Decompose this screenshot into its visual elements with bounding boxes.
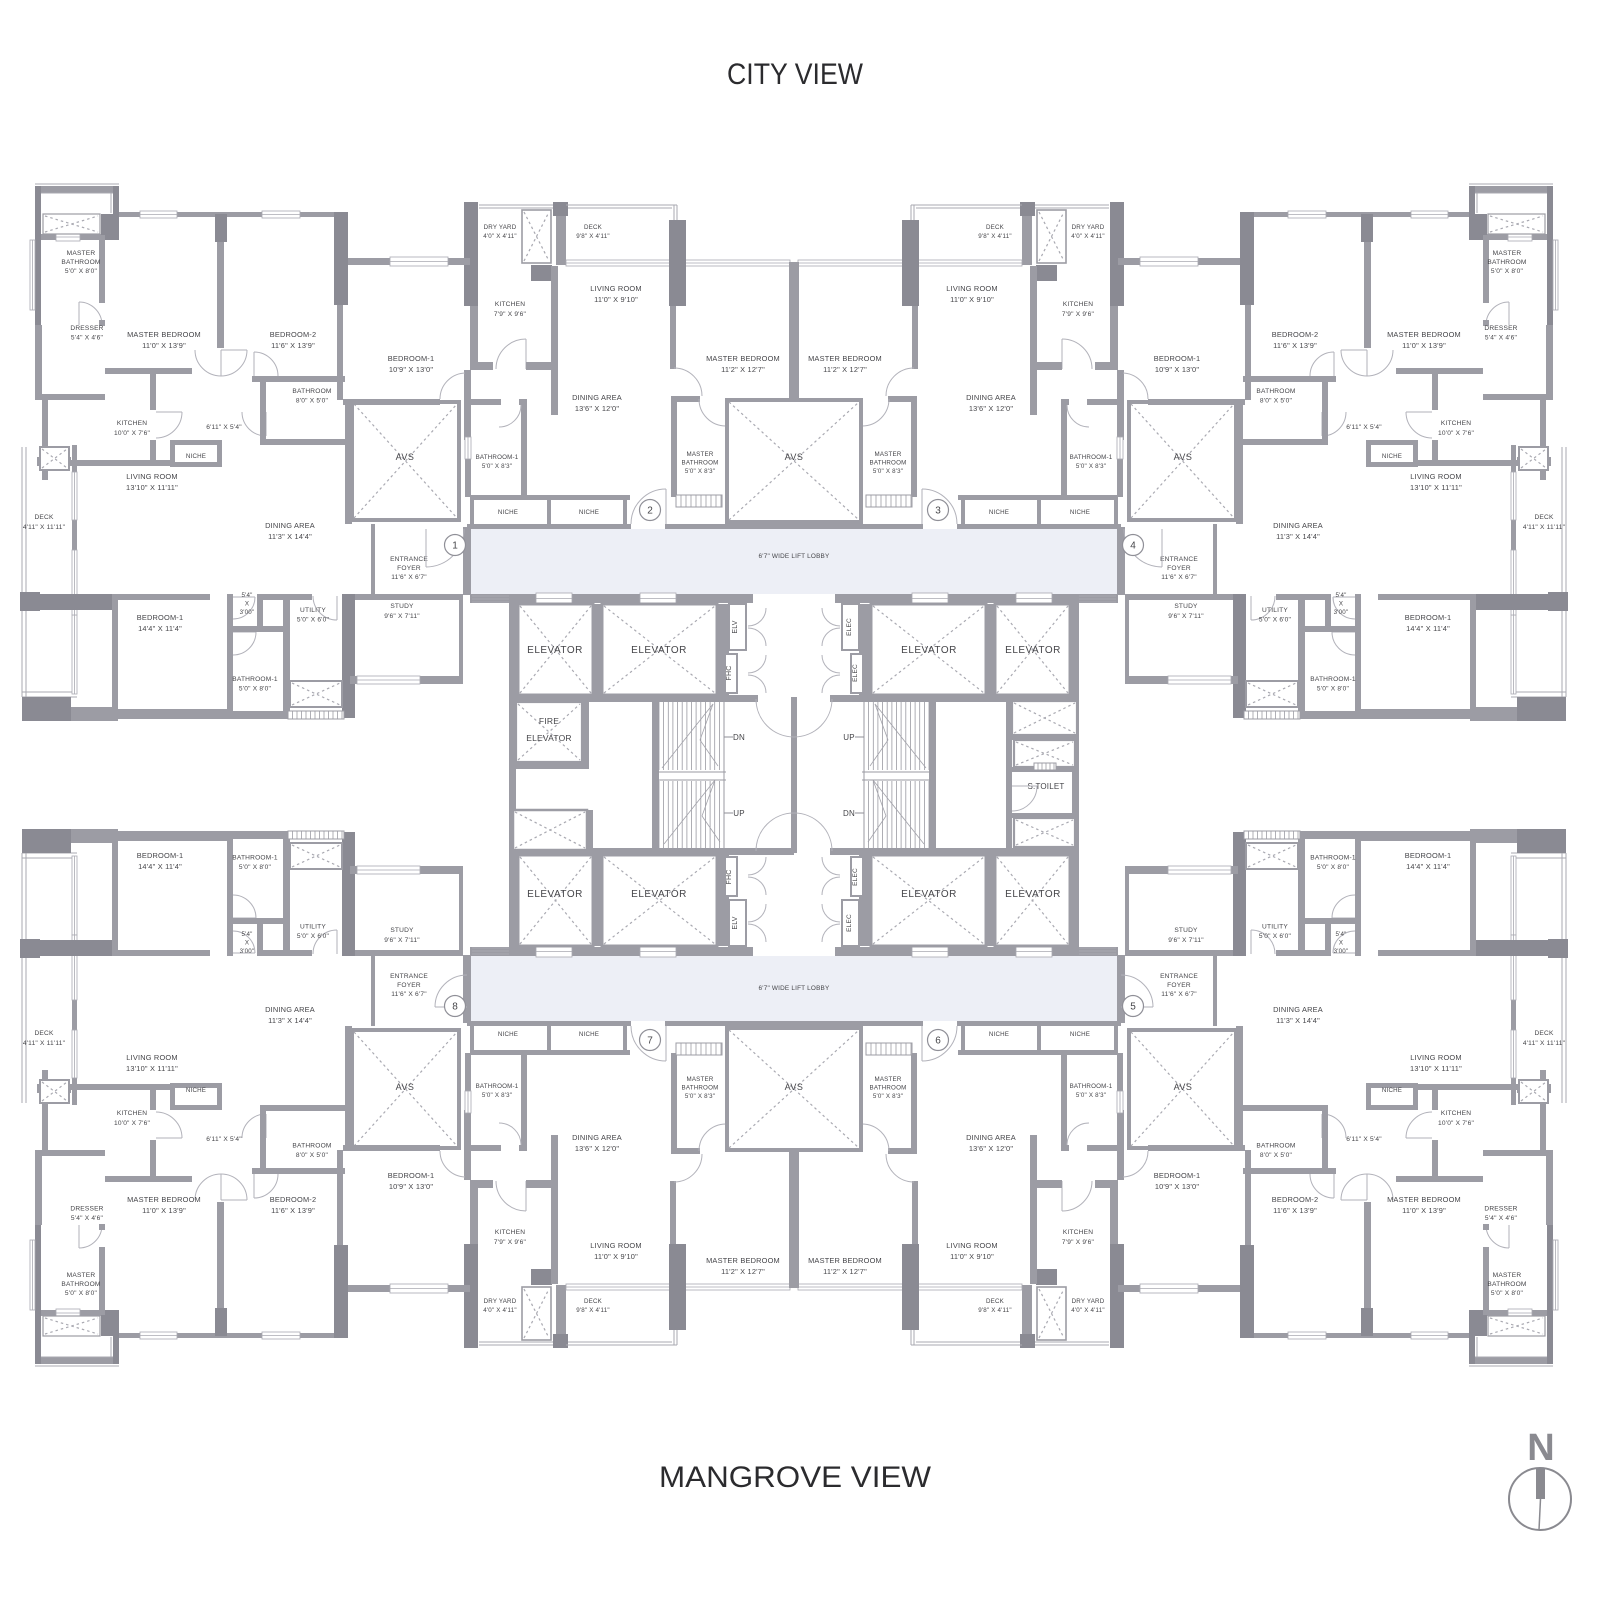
svg-text:5'0" X 8'3": 5'0" X 8'3" xyxy=(482,1092,512,1099)
svg-text:4'11" X 11'11": 4'11" X 11'11" xyxy=(1523,524,1566,531)
svg-text:ELEC: ELEC xyxy=(852,664,859,682)
svg-text:4'0" X 4'11": 4'0" X 4'11" xyxy=(1071,1307,1104,1314)
svg-text:14'4" X 11'4": 14'4" X 11'4" xyxy=(138,862,182,871)
svg-text:14'4" X 11'4": 14'4" X 11'4" xyxy=(1406,862,1450,871)
svg-text:DECK: DECK xyxy=(584,224,603,231)
svg-text:ELV: ELV xyxy=(732,620,739,633)
svg-text:10'9" X 13'0": 10'9" X 13'0" xyxy=(389,1182,434,1191)
svg-text:KITCHEN: KITCHEN xyxy=(1441,420,1471,427)
svg-text:5'4": 5'4" xyxy=(1335,931,1346,938)
svg-text:8'0" X 5'0": 8'0" X 5'0" xyxy=(1260,398,1293,405)
svg-text:BEDROOM-2: BEDROOM-2 xyxy=(1272,330,1319,339)
svg-text:DN: DN xyxy=(843,809,855,818)
svg-text:DRY YARD: DRY YARD xyxy=(484,224,517,231)
svg-text:5'0" X 8'3": 5'0" X 8'3" xyxy=(873,1093,903,1100)
svg-text:13'6" X 12'0": 13'6" X 12'0" xyxy=(575,404,620,413)
svg-text:8'0" X 5'0": 8'0" X 5'0" xyxy=(296,398,329,405)
svg-text:UP: UP xyxy=(733,809,745,818)
svg-text:11'6" X 13'9": 11'6" X 13'9" xyxy=(1273,1206,1317,1215)
svg-text:AVS: AVS xyxy=(1174,1082,1193,1092)
svg-text:BATHROOM-1: BATHROOM-1 xyxy=(1070,454,1113,461)
svg-text:11'2" X 12'7": 11'2" X 12'7" xyxy=(721,365,765,374)
svg-text:BATHROOM-1: BATHROOM-1 xyxy=(476,454,519,461)
svg-text:11'0" X 9'10": 11'0" X 9'10" xyxy=(950,295,994,304)
svg-text:ENTRANCE: ENTRANCE xyxy=(1160,556,1198,563)
svg-text:5'4" X 4'6": 5'4" X 4'6" xyxy=(1485,335,1518,342)
svg-text:6'11" X 5'4": 6'11" X 5'4" xyxy=(206,1136,242,1143)
svg-text:AVS: AVS xyxy=(396,452,415,462)
svg-text:5'0" X 6'0": 5'0" X 6'0" xyxy=(297,933,330,940)
svg-text:ELEC: ELEC xyxy=(852,868,859,886)
svg-text:NICHE: NICHE xyxy=(579,509,599,516)
svg-text:8'0" X 5'0": 8'0" X 5'0" xyxy=(296,1152,329,1159)
svg-text:13'6" X 12'0": 13'6" X 12'0" xyxy=(969,404,1014,413)
svg-text:DN: DN xyxy=(733,733,745,742)
svg-text:13'10" X 11'11": 13'10" X 11'11" xyxy=(126,483,178,492)
svg-text:LIVING ROOM: LIVING ROOM xyxy=(1410,1053,1461,1062)
svg-text:MASTER: MASTER xyxy=(687,1076,714,1083)
svg-text:4'11" X 11'11": 4'11" X 11'11" xyxy=(1523,1040,1566,1047)
svg-text:NICHE: NICHE xyxy=(1070,509,1090,516)
svg-text:BATHROOM: BATHROOM xyxy=(870,1085,907,1092)
svg-text:DINING AREA: DINING AREA xyxy=(572,1133,622,1142)
svg-text:11'3" X 14'4": 11'3" X 14'4" xyxy=(268,532,312,541)
svg-text:11'0" X 9'10": 11'0" X 9'10" xyxy=(594,295,638,304)
svg-text:BATHROOM-1: BATHROOM-1 xyxy=(1310,676,1356,683)
svg-text:7: 7 xyxy=(647,1036,653,1047)
svg-text:ELEVATOR: ELEVATOR xyxy=(1005,889,1061,900)
svg-text:MASTER: MASTER xyxy=(875,1076,902,1083)
svg-text:ENTRANCE: ENTRANCE xyxy=(1160,973,1198,980)
svg-text:NICHE: NICHE xyxy=(498,509,518,516)
svg-text:BEDROOM-1: BEDROOM-1 xyxy=(1154,354,1201,363)
svg-text:5'4" X 4'6": 5'4" X 4'6" xyxy=(71,335,104,342)
svg-text:6'11" X 5'4": 6'11" X 5'4" xyxy=(206,424,242,431)
svg-text:NICHE: NICHE xyxy=(1070,1031,1090,1038)
svg-text:MASTER BEDROOM: MASTER BEDROOM xyxy=(706,1256,780,1265)
svg-text:FHC: FHC xyxy=(726,870,733,885)
svg-text:MASTER BEDROOM: MASTER BEDROOM xyxy=(127,1195,201,1204)
svg-text:13'10" X 11'11": 13'10" X 11'11" xyxy=(126,1064,178,1073)
svg-text:11'6" X 13'9": 11'6" X 13'9" xyxy=(1273,341,1317,350)
svg-text:11'2" X 12'7": 11'2" X 12'7" xyxy=(721,1267,765,1276)
svg-text:5'4": 5'4" xyxy=(1335,592,1346,599)
svg-text:DINING AREA: DINING AREA xyxy=(265,521,315,530)
svg-text:14'4" X 11'4": 14'4" X 11'4" xyxy=(138,624,182,633)
svg-text:DRY YARD: DRY YARD xyxy=(1072,224,1105,231)
svg-text:3'00": 3'00" xyxy=(240,609,255,616)
svg-text:BEDROOM-2: BEDROOM-2 xyxy=(270,330,317,339)
svg-text:7'9" X 9'6": 7'9" X 9'6" xyxy=(494,311,527,318)
svg-text:BATHROOM: BATHROOM xyxy=(61,1281,100,1288)
svg-text:BATHROOM-1: BATHROOM-1 xyxy=(1310,855,1356,862)
svg-text:UP: UP xyxy=(843,733,855,742)
svg-text:4: 4 xyxy=(1130,541,1136,552)
svg-text:10'0" X 7'6": 10'0" X 7'6" xyxy=(1438,1120,1474,1127)
svg-text:4'11" X 11'11": 4'11" X 11'11" xyxy=(23,524,66,531)
svg-text:5'0" X 8'0": 5'0" X 8'0" xyxy=(1491,1290,1524,1297)
svg-text:5'0" X 8'3": 5'0" X 8'3" xyxy=(1076,1092,1106,1099)
svg-text:ELEVATOR: ELEVATOR xyxy=(631,645,687,656)
svg-text:DECK: DECK xyxy=(34,514,54,521)
svg-text:6'7" WIDE LIFT LOBBY: 6'7" WIDE LIFT LOBBY xyxy=(759,553,830,560)
svg-text:5'0" X 6'0": 5'0" X 6'0" xyxy=(1259,617,1292,624)
svg-text:DRESSER: DRESSER xyxy=(1484,1206,1517,1213)
svg-text:ENTRANCE: ENTRANCE xyxy=(390,973,428,980)
svg-text:5: 5 xyxy=(1130,1002,1136,1013)
svg-text:ELEVATOR: ELEVATOR xyxy=(1005,645,1061,656)
svg-text:KITCHEN: KITCHEN xyxy=(495,1229,525,1236)
svg-text:5'0" X 8'0": 5'0" X 8'0" xyxy=(239,864,272,871)
svg-text:BATHROOM: BATHROOM xyxy=(292,1143,331,1150)
svg-text:13'10" X 11'11": 13'10" X 11'11" xyxy=(1410,1064,1462,1073)
svg-text:ELEC: ELEC xyxy=(846,914,853,932)
svg-text:DRESSER: DRESSER xyxy=(1484,325,1517,332)
svg-text:11'0" X 13'9": 11'0" X 13'9" xyxy=(142,341,186,350)
svg-text:DECK: DECK xyxy=(34,1030,54,1037)
svg-text:11'6" X 13'9": 11'6" X 13'9" xyxy=(271,341,315,350)
svg-text:BATHROOM-1: BATHROOM-1 xyxy=(232,676,278,683)
svg-text:FOYER: FOYER xyxy=(397,982,421,989)
svg-text:MASTER BEDROOM: MASTER BEDROOM xyxy=(1387,330,1461,339)
svg-text:MASTER BEDROOM: MASTER BEDROOM xyxy=(1387,1195,1461,1204)
svg-text:LIVING ROOM: LIVING ROOM xyxy=(946,284,997,293)
svg-text:BATHROOM-1: BATHROOM-1 xyxy=(476,1083,519,1090)
svg-text:NICHE: NICHE xyxy=(186,453,206,460)
svg-text:5'0" X 8'0": 5'0" X 8'0" xyxy=(65,268,98,275)
svg-text:BEDROOM-1: BEDROOM-1 xyxy=(137,851,184,860)
svg-text:STUDY: STUDY xyxy=(390,603,414,610)
svg-text:NICHE: NICHE xyxy=(498,1031,518,1038)
svg-text:11'6" X 6'7": 11'6" X 6'7" xyxy=(391,991,427,998)
svg-text:ELV: ELV xyxy=(732,916,739,929)
svg-text:LIVING ROOM: LIVING ROOM xyxy=(946,1241,997,1250)
svg-text:11'0" X 9'10": 11'0" X 9'10" xyxy=(950,1252,994,1261)
svg-text:5'0" X 8'3": 5'0" X 8'3" xyxy=(685,1093,715,1100)
svg-text:4'0" X 4'11": 4'0" X 4'11" xyxy=(483,1307,516,1314)
svg-text:6'11" X 5'4": 6'11" X 5'4" xyxy=(1346,424,1382,431)
svg-text:9'8" X 4'11": 9'8" X 4'11" xyxy=(576,233,609,240)
svg-text:BATHROOM: BATHROOM xyxy=(870,460,907,467)
svg-text:10'9" X 13'0": 10'9" X 13'0" xyxy=(1155,365,1200,374)
svg-text:KITCHEN: KITCHEN xyxy=(1441,1110,1471,1117)
svg-text:3'00": 3'00" xyxy=(1334,609,1349,616)
svg-text:UTILITY: UTILITY xyxy=(300,924,326,931)
svg-text:4'0" X 4'11": 4'0" X 4'11" xyxy=(483,233,516,240)
svg-text:KITCHEN: KITCHEN xyxy=(1063,301,1093,308)
svg-text:DECK: DECK xyxy=(584,1298,603,1305)
svg-text:7'9" X 9'6": 7'9" X 9'6" xyxy=(1062,311,1095,318)
svg-text:ELEVATOR: ELEVATOR xyxy=(527,645,583,656)
svg-text:5'0" X 8'3": 5'0" X 8'3" xyxy=(873,468,903,475)
svg-text:3: 3 xyxy=(935,506,941,517)
svg-text:5'0" X 8'0": 5'0" X 8'0" xyxy=(1491,268,1524,275)
svg-text:MASTER: MASTER xyxy=(1493,1272,1522,1279)
svg-text:LIVING ROOM: LIVING ROOM xyxy=(590,284,641,293)
svg-text:9'8" X 4'11": 9'8" X 4'11" xyxy=(576,1307,609,1314)
svg-text:BEDROOM-1: BEDROOM-1 xyxy=(388,1171,435,1180)
svg-text:BATHROOM: BATHROOM xyxy=(292,388,331,395)
svg-text:11'6" X 13'9": 11'6" X 13'9" xyxy=(271,1206,315,1215)
svg-text:N: N xyxy=(1527,1427,1554,1469)
svg-text:MASTER: MASTER xyxy=(67,250,96,257)
svg-text:FHC: FHC xyxy=(726,666,733,681)
svg-text:9'6" X 7'11": 9'6" X 7'11" xyxy=(1168,937,1204,944)
svg-text:DECK: DECK xyxy=(986,224,1005,231)
svg-text:UTILITY: UTILITY xyxy=(1262,607,1288,614)
svg-text:5'4" X 4'6": 5'4" X 4'6" xyxy=(71,1215,104,1222)
svg-text:8: 8 xyxy=(452,1002,458,1013)
svg-text:13'6" X 12'0": 13'6" X 12'0" xyxy=(575,1144,620,1153)
svg-text:5'0" X 8'3": 5'0" X 8'3" xyxy=(685,468,715,475)
svg-text:6: 6 xyxy=(935,1036,941,1047)
svg-text:BATHROOM-1: BATHROOM-1 xyxy=(232,855,278,862)
svg-text:ELEVATOR: ELEVATOR xyxy=(526,733,572,743)
svg-text:5'4" X 4'6": 5'4" X 4'6" xyxy=(1485,1215,1518,1222)
svg-text:13'10" X 11'11": 13'10" X 11'11" xyxy=(1410,483,1462,492)
svg-text:BATHROOM: BATHROOM xyxy=(682,1085,719,1092)
svg-text:NICHE: NICHE xyxy=(579,1031,599,1038)
svg-text:AVS: AVS xyxy=(396,1082,415,1092)
svg-text:13'6" X 12'0": 13'6" X 12'0" xyxy=(969,1144,1014,1153)
svg-text:6'7" WIDE LIFT LOBBY: 6'7" WIDE LIFT LOBBY xyxy=(759,985,830,992)
svg-text:3'00": 3'00" xyxy=(240,948,255,955)
svg-text:DINING AREA: DINING AREA xyxy=(1273,521,1323,530)
svg-text:DINING AREA: DINING AREA xyxy=(966,393,1016,402)
svg-text:DINING AREA: DINING AREA xyxy=(966,1133,1016,1142)
svg-text:X: X xyxy=(1339,940,1343,947)
svg-text:4'0" X 4'11": 4'0" X 4'11" xyxy=(1071,233,1104,240)
svg-text:5'0" X 8'3": 5'0" X 8'3" xyxy=(1076,463,1106,470)
svg-text:ELEC: ELEC xyxy=(846,618,853,636)
svg-text:AVS: AVS xyxy=(785,1082,804,1092)
svg-text:MASTER BEDROOM: MASTER BEDROOM xyxy=(808,354,882,363)
svg-text:BATHROOM: BATHROOM xyxy=(1487,1281,1526,1288)
svg-text:11'6" X 6'7": 11'6" X 6'7" xyxy=(391,574,427,581)
svg-text:CITY VIEW: CITY VIEW xyxy=(727,58,864,91)
svg-text:NICHE: NICHE xyxy=(186,1087,206,1094)
svg-text:DECK: DECK xyxy=(1534,514,1554,521)
svg-text:DECK: DECK xyxy=(986,1298,1005,1305)
svg-text:ELEVATOR: ELEVATOR xyxy=(631,889,687,900)
svg-text:11'0" X 13'9": 11'0" X 13'9" xyxy=(142,1206,186,1215)
svg-text:DRESSER: DRESSER xyxy=(70,1206,103,1213)
svg-text:UTILITY: UTILITY xyxy=(300,607,326,614)
svg-text:AVS: AVS xyxy=(1174,452,1193,462)
svg-text:BEDROOM-2: BEDROOM-2 xyxy=(270,1195,317,1204)
svg-text:NICHE: NICHE xyxy=(989,1031,1009,1038)
svg-text:10'0" X 7'6": 10'0" X 7'6" xyxy=(114,1120,150,1127)
svg-text:FIRE: FIRE xyxy=(539,716,559,726)
svg-text:UTILITY: UTILITY xyxy=(1262,924,1288,931)
svg-text:BEDROOM-1: BEDROOM-1 xyxy=(388,354,435,363)
svg-text:11'0" X 13'9": 11'0" X 13'9" xyxy=(1402,1206,1446,1215)
svg-text:11'6" X 6'7": 11'6" X 6'7" xyxy=(1161,991,1197,998)
svg-text:DECK: DECK xyxy=(1534,1030,1554,1037)
svg-text:5'0" X 8'0": 5'0" X 8'0" xyxy=(65,1290,98,1297)
svg-text:ENTRANCE: ENTRANCE xyxy=(390,556,428,563)
svg-text:3'00": 3'00" xyxy=(1334,948,1349,955)
svg-text:MASTER BEDROOM: MASTER BEDROOM xyxy=(808,1256,882,1265)
svg-text:MASTER: MASTER xyxy=(67,1272,96,1279)
svg-text:BATHROOM: BATHROOM xyxy=(1256,388,1295,395)
svg-text:AVS: AVS xyxy=(785,452,804,462)
svg-text:10'9" X 13'0": 10'9" X 13'0" xyxy=(389,365,434,374)
svg-text:LIVING ROOM: LIVING ROOM xyxy=(126,1053,177,1062)
svg-text:KITCHEN: KITCHEN xyxy=(495,301,525,308)
svg-text:BATHROOM: BATHROOM xyxy=(1256,1143,1295,1150)
svg-text:BATHROOM: BATHROOM xyxy=(1487,259,1526,266)
svg-text:DRY YARD: DRY YARD xyxy=(1072,1298,1105,1305)
svg-text:DRY YARD: DRY YARD xyxy=(484,1298,517,1305)
svg-text:5'0" X 6'0": 5'0" X 6'0" xyxy=(1259,933,1292,940)
svg-text:ELEVATOR: ELEVATOR xyxy=(527,889,583,900)
svg-text:5'0" X 8'3": 5'0" X 8'3" xyxy=(482,463,512,470)
svg-text:DINING AREA: DINING AREA xyxy=(265,1005,315,1014)
svg-text:BATHROOM: BATHROOM xyxy=(682,460,719,467)
svg-text:5'4": 5'4" xyxy=(241,592,252,599)
svg-text:5'0" X 6'0": 5'0" X 6'0" xyxy=(297,617,330,624)
svg-text:MASTER: MASTER xyxy=(687,451,714,458)
svg-text:BEDROOM-1: BEDROOM-1 xyxy=(1405,851,1452,860)
svg-text:BATHROOM-1: BATHROOM-1 xyxy=(1070,1083,1113,1090)
svg-text:1: 1 xyxy=(452,541,458,552)
svg-text:NICHE: NICHE xyxy=(1382,453,1402,460)
svg-text:5'0" X 8'0": 5'0" X 8'0" xyxy=(239,686,272,693)
svg-text:6'11" X 5'4": 6'11" X 5'4" xyxy=(1346,1136,1382,1143)
svg-text:11'3" X 14'4": 11'3" X 14'4" xyxy=(1276,532,1320,541)
svg-text:DRESSER: DRESSER xyxy=(70,325,103,332)
svg-text:11'6" X 6'7": 11'6" X 6'7" xyxy=(1161,574,1197,581)
svg-text:11'0" X 9'10": 11'0" X 9'10" xyxy=(594,1252,638,1261)
svg-text:MASTER BEDROOM: MASTER BEDROOM xyxy=(706,354,780,363)
svg-text:MASTER: MASTER xyxy=(875,451,902,458)
svg-text:NICHE: NICHE xyxy=(989,509,1009,516)
svg-text:10'0" X 7'6": 10'0" X 7'6" xyxy=(114,430,150,437)
svg-text:KITCHEN: KITCHEN xyxy=(117,420,147,427)
svg-text:5'0" X 8'0": 5'0" X 8'0" xyxy=(1317,864,1350,871)
svg-text:STUDY: STUDY xyxy=(390,927,414,934)
svg-text:LIVING ROOM: LIVING ROOM xyxy=(590,1241,641,1250)
svg-text:NICHE: NICHE xyxy=(1382,1087,1402,1094)
svg-text:KITCHEN: KITCHEN xyxy=(117,1110,147,1117)
svg-text:X: X xyxy=(245,601,249,608)
svg-text:LIVING ROOM: LIVING ROOM xyxy=(126,472,177,481)
svg-text:5'4": 5'4" xyxy=(241,931,252,938)
svg-text:DINING AREA: DINING AREA xyxy=(1273,1005,1323,1014)
svg-text:9'8" X 4'11": 9'8" X 4'11" xyxy=(978,1307,1011,1314)
svg-text:11'2" X 12'7": 11'2" X 12'7" xyxy=(823,365,867,374)
svg-text:X: X xyxy=(245,940,249,947)
svg-text:BEDROOM-1: BEDROOM-1 xyxy=(137,613,184,622)
svg-text:7'9" X 9'6": 7'9" X 9'6" xyxy=(1062,1239,1095,1246)
svg-text:STUDY: STUDY xyxy=(1174,603,1198,610)
svg-text:FOYER: FOYER xyxy=(1167,982,1191,989)
svg-text:LIVING ROOM: LIVING ROOM xyxy=(1410,472,1461,481)
svg-text:5'0" X 8'0": 5'0" X 8'0" xyxy=(1317,686,1350,693)
svg-text:FOYER: FOYER xyxy=(1167,565,1191,572)
svg-text:MASTER: MASTER xyxy=(1493,250,1522,257)
svg-text:ELEVATOR: ELEVATOR xyxy=(901,645,957,656)
svg-text:9'6" X 7'11": 9'6" X 7'11" xyxy=(1168,613,1204,620)
svg-text:BEDROOM-1: BEDROOM-1 xyxy=(1154,1171,1201,1180)
svg-text:9'8" X 4'11": 9'8" X 4'11" xyxy=(978,233,1011,240)
svg-text:10'9" X 13'0": 10'9" X 13'0" xyxy=(1155,1182,1200,1191)
svg-text:FOYER: FOYER xyxy=(397,565,421,572)
svg-text:4'11" X 11'11": 4'11" X 11'11" xyxy=(23,1040,66,1047)
svg-text:10'0" X 7'6": 10'0" X 7'6" xyxy=(1438,430,1474,437)
svg-text:8'0" X 5'0": 8'0" X 5'0" xyxy=(1260,1152,1293,1159)
svg-text:11'0" X 13'9": 11'0" X 13'9" xyxy=(1402,341,1446,350)
svg-text:ELEVATOR: ELEVATOR xyxy=(901,889,957,900)
svg-text:9'6" X 7'11": 9'6" X 7'11" xyxy=(384,613,420,620)
svg-text:BEDROOM-2: BEDROOM-2 xyxy=(1272,1195,1319,1204)
svg-text:14'4" X 11'4": 14'4" X 11'4" xyxy=(1406,624,1450,633)
svg-text:BEDROOM-1: BEDROOM-1 xyxy=(1405,613,1452,622)
svg-text:11'3" X 14'4": 11'3" X 14'4" xyxy=(1276,1016,1320,1025)
svg-text:MANGROVE VIEW: MANGROVE VIEW xyxy=(659,1461,932,1494)
svg-text:7'9" X 9'6": 7'9" X 9'6" xyxy=(494,1239,527,1246)
svg-text:X: X xyxy=(1339,601,1343,608)
svg-text:11'2" X 12'7": 11'2" X 12'7" xyxy=(823,1267,867,1276)
svg-text:2: 2 xyxy=(647,506,653,517)
svg-text:STUDY: STUDY xyxy=(1174,927,1198,934)
svg-text:KITCHEN: KITCHEN xyxy=(1063,1229,1093,1236)
svg-text:11'3" X 14'4": 11'3" X 14'4" xyxy=(268,1016,312,1025)
svg-text:BATHROOM: BATHROOM xyxy=(61,259,100,266)
svg-text:DINING AREA: DINING AREA xyxy=(572,393,622,402)
svg-text:MASTER BEDROOM: MASTER BEDROOM xyxy=(127,330,201,339)
svg-text:9'6" X 7'11": 9'6" X 7'11" xyxy=(384,937,420,944)
